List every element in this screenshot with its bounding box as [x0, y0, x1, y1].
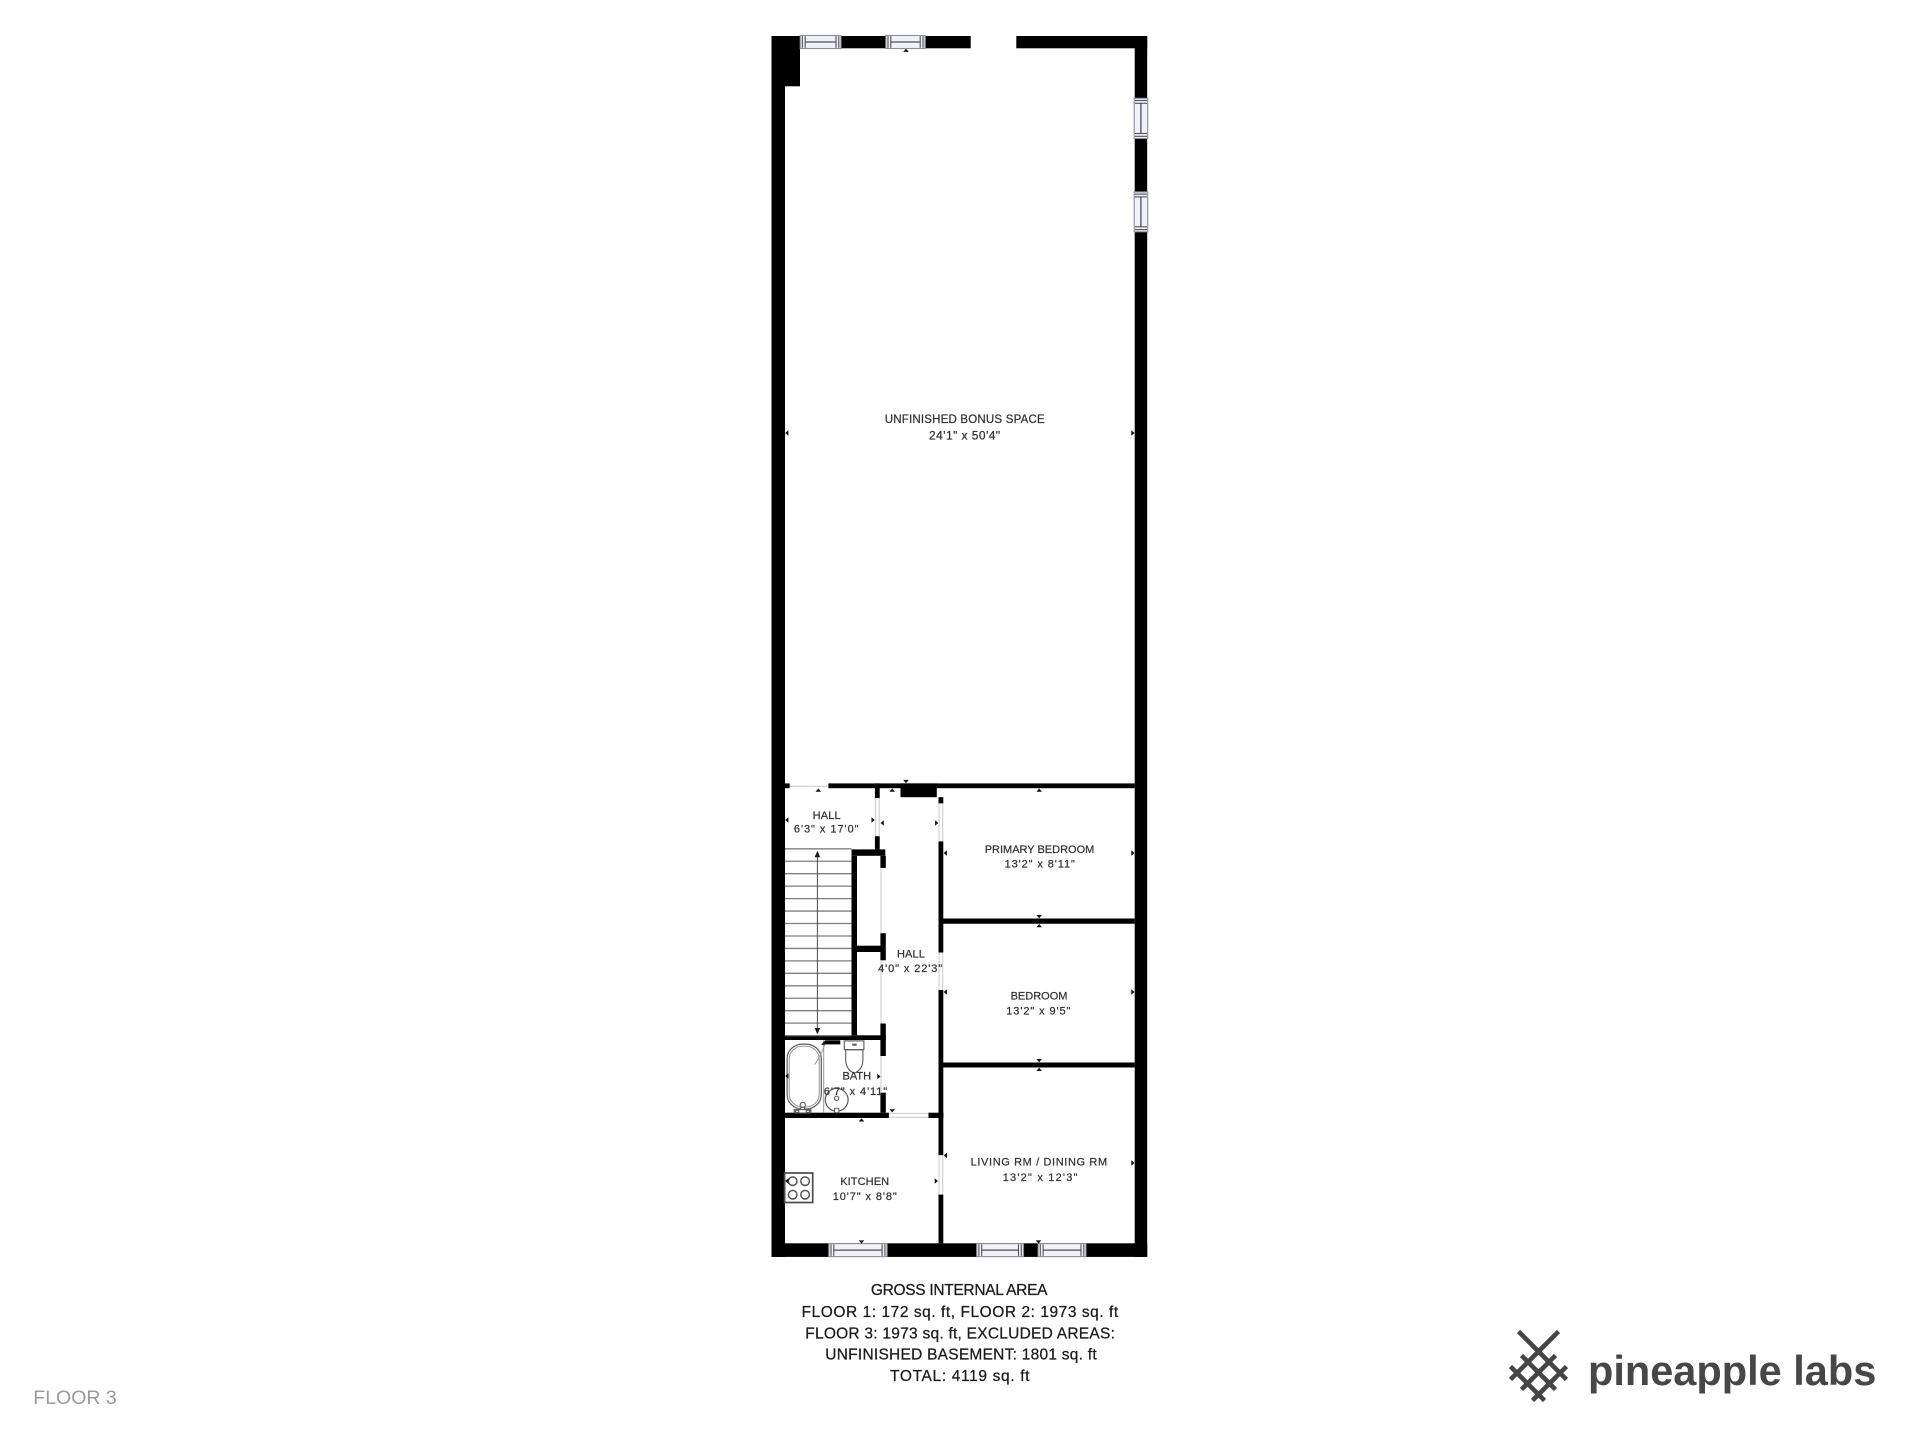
- svg-text:13'2" x 8'11": 13'2" x 8'11": [1005, 858, 1076, 870]
- svg-text:6'7" x 4'11": 6'7" x 4'11": [824, 1086, 888, 1098]
- svg-text:BEDROOM: BEDROOM: [1011, 991, 1068, 1003]
- svg-text:UNFINISHED BASEMENT: 1801 sq.: UNFINISHED BASEMENT: 1801 sq. ft: [825, 1347, 1097, 1364]
- svg-text:10'7" x 8'8": 10'7" x 8'8": [833, 1191, 898, 1203]
- svg-text:6'3" x 17'0": 6'3" x 17'0": [794, 824, 860, 836]
- svg-text:LIVING RM / DINING RM: LIVING RM / DINING RM: [971, 1157, 1108, 1169]
- svg-text:PRIMARY BEDROOM: PRIMARY BEDROOM: [985, 844, 1095, 856]
- svg-text:13'2" x 9'5": 13'2" x 9'5": [1006, 1005, 1071, 1017]
- svg-text:BATH: BATH: [843, 1071, 872, 1083]
- svg-text:GROSS INTERNAL AREA: GROSS INTERNAL AREA: [871, 1282, 1048, 1299]
- svg-text:13'2" x 12'3": 13'2" x 12'3": [1003, 1172, 1079, 1184]
- svg-text:FLOOR 3: 1973 sq. ft, EXCLUDED: FLOOR 3: 1973 sq. ft, EXCLUDED AREAS:: [805, 1325, 1115, 1342]
- svg-text:HALL: HALL: [813, 810, 841, 822]
- svg-text:HALL: HALL: [897, 948, 925, 960]
- svg-text:pineapple labs: pineapple labs: [1588, 1347, 1876, 1394]
- svg-text:UNFINISHED BONUS SPACE: UNFINISHED BONUS SPACE: [885, 414, 1045, 426]
- svg-text:24'1" x 50'4": 24'1" x 50'4": [929, 428, 1001, 442]
- svg-text:FLOOR 1: 172 sq. ft, FLOOR 2:: FLOOR 1: 172 sq. ft, FLOOR 2: 1973 sq. f…: [802, 1304, 1119, 1321]
- svg-text:FLOOR 3: FLOOR 3: [33, 1387, 116, 1409]
- svg-text:TOTAL: 4119 sq. ft: TOTAL: 4119 sq. ft: [890, 1368, 1030, 1385]
- svg-text:4'0" x 22'3": 4'0" x 22'3": [878, 963, 943, 975]
- svg-text:KITCHEN: KITCHEN: [840, 1176, 889, 1188]
